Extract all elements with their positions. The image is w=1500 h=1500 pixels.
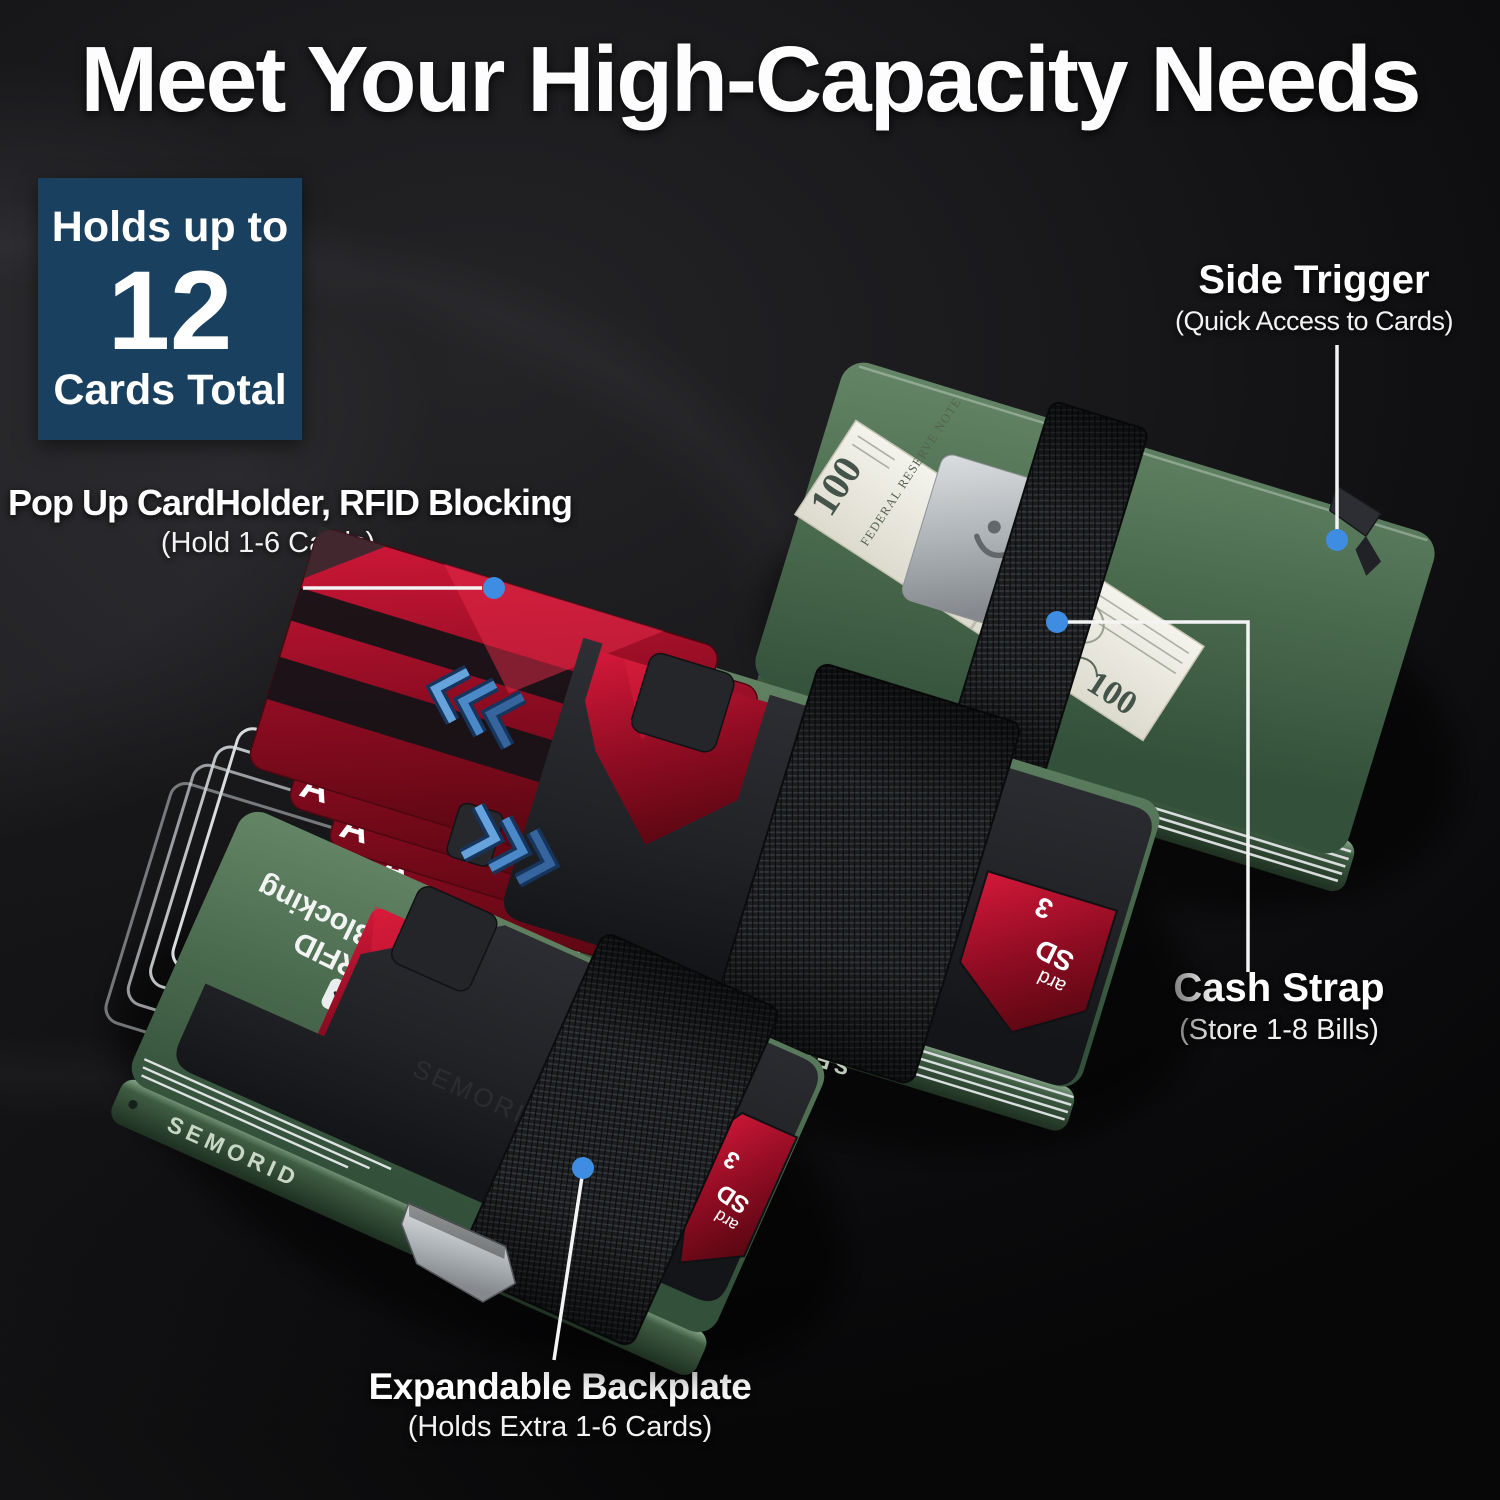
side-trigger-dot [1326,529,1348,551]
backplate-dot [572,1157,594,1179]
product-infographic: Meet Your High-Capacity Needs Holds up t… [0,0,1500,1500]
pop-up-dot [483,577,505,599]
cash-strap-dot [1046,611,1068,633]
product-render: 100 FEDERAL RESERVE NOTE 100 SEM [0,0,1500,1500]
